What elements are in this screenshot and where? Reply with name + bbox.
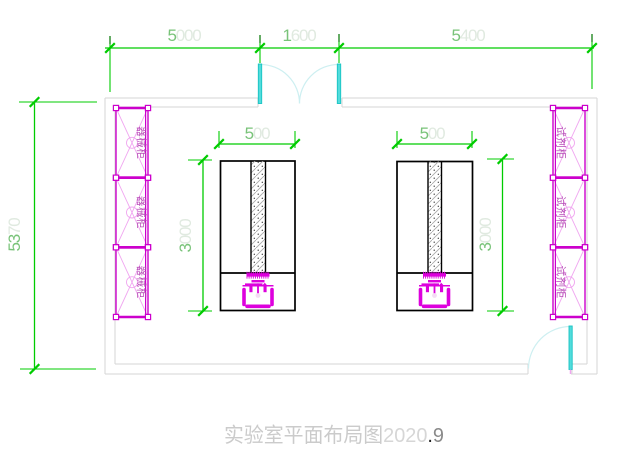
svg-text:3000: 3000 xyxy=(176,219,195,253)
svg-text:试剂柜: 试剂柜 xyxy=(555,196,568,229)
svg-text:5370: 5370 xyxy=(5,218,24,252)
svg-text:实验室平面布局图2020.9: 实验室平面布局图2020.9 xyxy=(224,424,444,447)
svg-text:1600: 1600 xyxy=(282,26,316,45)
svg-text:试剂柜: 试剂柜 xyxy=(555,265,568,298)
svg-text:3000: 3000 xyxy=(476,218,495,252)
svg-text:器械柜: 器械柜 xyxy=(135,126,148,159)
svg-text:器械柜: 器械柜 xyxy=(135,196,148,229)
svg-text:5000: 5000 xyxy=(167,26,201,45)
svg-text:5400: 5400 xyxy=(451,26,485,45)
svg-text:器械柜: 器械柜 xyxy=(135,265,148,298)
svg-text:试剂柜: 试剂柜 xyxy=(555,126,568,159)
svg-text:500: 500 xyxy=(245,124,271,143)
svg-text:500: 500 xyxy=(420,124,446,143)
